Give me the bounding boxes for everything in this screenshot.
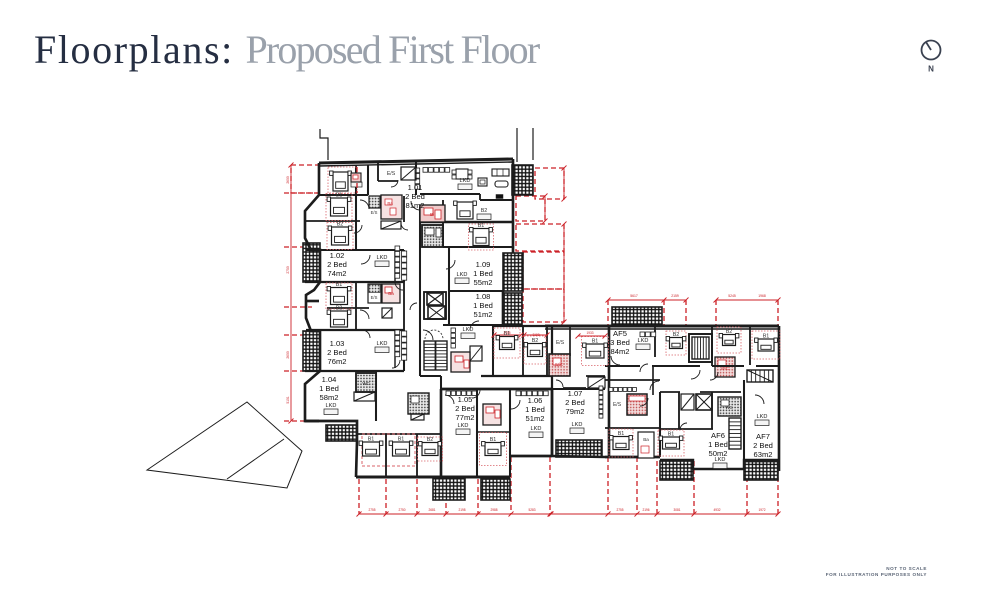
svg-text:84m2: 84m2 [611,347,630,356]
svg-text:63m2: 63m2 [754,450,773,459]
svg-text:1.03: 1.03 [330,339,345,348]
svg-text:2755: 2755 [368,508,375,512]
svg-text:5617: 5617 [630,294,638,298]
svg-text:W/C: W/C [555,362,563,367]
svg-text:Ba: Ba [388,291,394,296]
svg-text:B2: B2 [336,306,343,312]
svg-text:E/S: E/S [371,210,378,215]
svg-text:1.08: 1.08 [476,292,491,301]
svg-text:AF5: AF5 [613,329,627,338]
svg-text:LKD: LKD [531,426,542,432]
svg-text:AF7: AF7 [756,432,770,441]
svg-text:2600: 2600 [286,176,290,184]
svg-text:B1: B1 [398,437,405,443]
svg-text:Bi: Bi [430,212,434,217]
svg-text:81m2: 81m2 [406,201,425,210]
svg-text:1 Bed: 1 Bed [319,384,339,393]
svg-text:B2: B2 [532,338,539,344]
svg-text:2196: 2196 [642,508,649,512]
svg-text:1 Bed: 1 Bed [473,301,493,310]
svg-text:2 Bed: 2 Bed [405,192,425,201]
svg-text:3 Bed: 3 Bed [610,338,630,347]
svg-text:2988: 2988 [490,508,497,512]
svg-text:1.05: 1.05 [458,395,473,404]
svg-text:E/S: E/S [613,402,622,408]
svg-text:LKD: LKD [326,403,337,409]
svg-text:2198: 2198 [532,333,539,337]
svg-text:77m2: 77m2 [456,413,475,422]
svg-text:1 Bed: 1 Bed [708,440,728,449]
svg-text:LKD: LKD [377,255,388,261]
svg-text:LKD: LKD [638,338,649,344]
svg-text:2198: 2198 [458,508,465,512]
svg-text:1 Bed: 1 Bed [525,405,545,414]
svg-text:B1: B1 [336,193,343,199]
svg-text:B2: B2 [673,332,680,338]
svg-text:WC: WC [362,381,369,386]
svg-text:E/S: E/S [556,340,565,346]
svg-text:76m2: 76m2 [328,357,347,366]
svg-text:Ba: Ba [387,201,393,206]
svg-text:2 Bed: 2 Bed [327,348,347,357]
svg-text:E/S: E/S [371,295,378,300]
svg-text:1.06: 1.06 [528,396,543,405]
svg-text:B1: B1 [592,339,599,345]
svg-text:B1: B1 [478,223,485,229]
svg-text:79m2: 79m2 [566,407,585,416]
svg-text:2 Bed: 2 Bed [565,398,585,407]
svg-text:LKD: LKD [757,414,768,420]
svg-text:WC: WC [725,405,732,410]
svg-text:B1: B1 [490,437,497,443]
svg-text:AF6: AF6 [711,431,725,440]
svg-text:2755: 2755 [616,508,623,512]
svg-text:B1: B1 [668,432,675,438]
svg-text:B1: B1 [763,334,770,340]
svg-text:2600: 2600 [286,351,290,359]
svg-text:E/S: E/S [387,171,396,177]
svg-text:1.02: 1.02 [330,251,345,260]
svg-text:LKD: LKD [463,327,474,333]
svg-text:1968: 1968 [758,294,766,298]
svg-text:LKD: LKD [460,178,471,184]
svg-text:LKD: LKD [377,341,388,347]
svg-text:5245: 5245 [728,294,736,298]
svg-text:1933: 1933 [586,331,593,335]
svg-text:2755: 2755 [503,331,510,335]
svg-text:1.09: 1.09 [476,260,491,269]
svg-text:LKD: LKD [715,457,726,463]
svg-text:2 Bed: 2 Bed [327,260,347,269]
svg-text:1.01: 1.01 [408,183,423,192]
svg-text:58m2: 58m2 [320,393,339,402]
svg-text:1.04: 1.04 [322,375,337,384]
svg-text:74m2: 74m2 [328,269,347,278]
svg-text:B1: B1 [618,431,625,437]
svg-text:1 Bed: 1 Bed [473,269,493,278]
svg-text:3081: 3081 [673,508,680,512]
svg-text:2 Bed: 2 Bed [753,441,773,450]
svg-text:2681: 2681 [428,508,435,512]
svg-text:B1: B1 [368,437,375,443]
svg-text:B2: B2 [481,208,488,214]
svg-text:5101: 5101 [286,396,290,404]
svg-text:2750: 2750 [286,266,290,274]
svg-text:B1: B1 [336,282,343,288]
svg-text:2750: 2750 [398,508,405,512]
svg-text:B2: B2 [337,222,344,228]
svg-text:2 Bed: 2 Bed [455,404,475,413]
svg-text:51m2: 51m2 [474,310,493,319]
svg-text:1.07: 1.07 [568,389,583,398]
svg-text:LKD: LKD [457,272,468,278]
svg-text:Ba: Ba [643,437,649,442]
svg-text:B2: B2 [427,437,434,443]
svg-text:51m2: 51m2 [526,414,545,423]
svg-text:4932: 4932 [713,508,720,512]
svg-text:B2: B2 [726,329,733,335]
svg-text:LKD: LKD [458,423,469,429]
svg-text:2159: 2159 [671,294,679,298]
svg-text:5283: 5283 [528,508,535,512]
svg-text:1972: 1972 [758,508,765,512]
svg-text:LKD: LKD [572,422,583,428]
svg-text:55m2: 55m2 [474,278,493,287]
